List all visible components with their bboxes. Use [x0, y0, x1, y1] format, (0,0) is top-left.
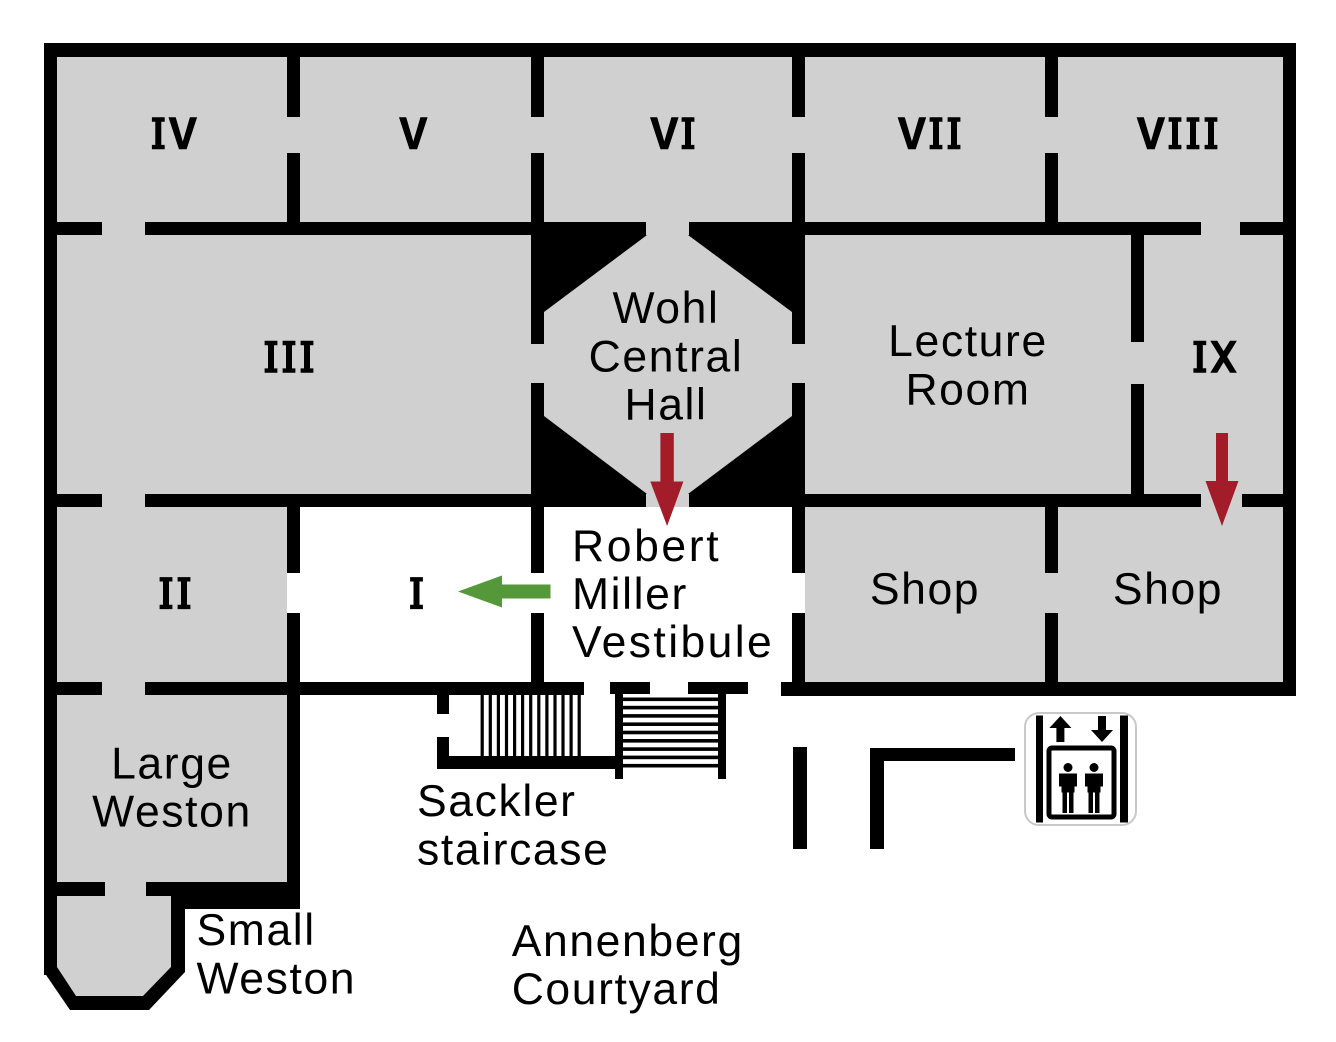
svg-text:Central: Central: [589, 332, 744, 381]
svg-text:Hall: Hall: [624, 381, 707, 430]
svg-text:Shop: Shop: [1113, 565, 1223, 614]
svg-text:Large: Large: [111, 739, 233, 788]
svg-text:Room: Room: [905, 365, 1030, 414]
svg-text:Lecture: Lecture: [888, 317, 1048, 366]
svg-text:Shop: Shop: [870, 565, 980, 614]
svg-text:Robert: Robert: [572, 522, 721, 571]
svg-text:Small: Small: [197, 906, 316, 955]
svg-text:Miller: Miller: [572, 570, 688, 619]
svg-text:Sackler: Sackler: [417, 777, 577, 826]
svg-text:staircase: staircase: [417, 825, 609, 874]
svg-text:Weston: Weston: [92, 788, 252, 837]
svg-text:Wohl: Wohl: [613, 284, 720, 333]
svg-text:Vestibule: Vestibule: [572, 618, 774, 667]
svg-text:Weston: Weston: [197, 955, 357, 1004]
svg-text:Courtyard: Courtyard: [512, 965, 722, 1014]
svg-text:Annenberg: Annenberg: [512, 917, 744, 966]
